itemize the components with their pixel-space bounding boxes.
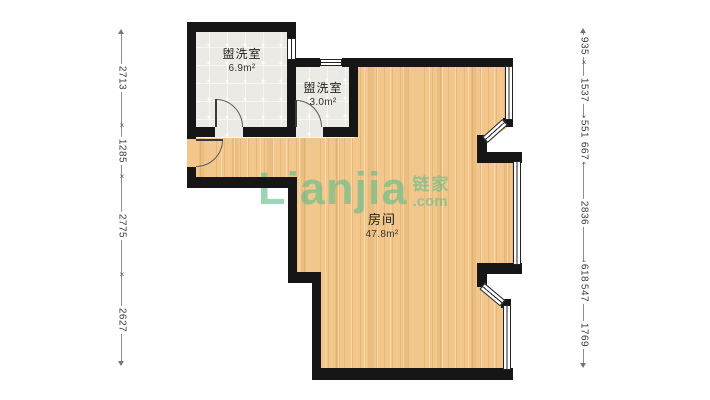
- dimension-label: 935: [579, 35, 590, 57]
- lianjia-logo-text: Lianjia: [258, 168, 408, 210]
- wall-washroom1-top: [187, 22, 296, 32]
- dimension-arrow-down: [118, 361, 124, 366]
- entrance-door-leaf: [196, 139, 223, 141]
- dimension-tick: ×: [120, 122, 125, 130]
- room-name: 房间: [332, 209, 432, 228]
- dimension-arrow-up: [118, 29, 124, 34]
- dimension-label: 2836: [579, 199, 590, 227]
- room-area: 6.9m²: [196, 63, 288, 74]
- dimension-label: 547: [579, 282, 590, 304]
- room-label-washroom-2: 盥洗室 3.0m²: [292, 79, 354, 108]
- dimension-arrow-up: [580, 28, 586, 33]
- window-washroom1: [287, 38, 296, 60]
- dimension-label: 2713: [117, 64, 128, 92]
- lianjia-brand-block: 链家 .com: [413, 176, 451, 209]
- wall-washroom-bottom-a: [187, 127, 215, 137]
- wall-left-lower-vertical: [312, 272, 321, 372]
- dimension-label: 1769: [579, 321, 590, 349]
- wall-bottom: [312, 368, 513, 380]
- window-right-bottom: [503, 305, 511, 370]
- window-washroom2: [320, 59, 342, 66]
- dimension-arrow-down: [580, 363, 586, 368]
- dimension-label: 1285: [117, 137, 128, 165]
- room-area: 3.0m²: [292, 97, 354, 108]
- dimension-label: 551: [579, 118, 590, 140]
- lianjia-watermark: Lianjia 链家 .com: [258, 168, 451, 210]
- dimension-label: 667: [579, 140, 590, 162]
- washroom1-door-leaf: [215, 99, 217, 127]
- dimension-tick: ×: [582, 59, 587, 67]
- dimension-tick: ×: [120, 271, 125, 279]
- window-right-top: [505, 66, 513, 120]
- room-name: 盥洗室: [292, 79, 354, 96]
- wall-washroom-bottom-c: [323, 127, 358, 137]
- wall-bottom-left-horizontal: [187, 177, 297, 188]
- dimension-label: 1537: [579, 76, 590, 104]
- room-label-washroom-1: 盥洗室 6.9m²: [196, 45, 288, 74]
- lianjia-brand-cn: 链家: [413, 176, 451, 194]
- floor-plan: Lianjia 链家 .com 盥洗室 6.9m² 盥洗室 3.: [0, 0, 710, 400]
- dimension-label: 2627: [117, 306, 128, 334]
- room-area: 47.8m²: [332, 229, 432, 240]
- dimension-tick: ×: [120, 173, 125, 181]
- dimension-label: 2775: [117, 212, 128, 240]
- window-right-middle: [513, 161, 521, 265]
- dimension-label: 618: [579, 262, 590, 284]
- wall-washroom-bottom-b: [243, 127, 296, 137]
- lianjia-brand-domain: .com: [413, 194, 451, 209]
- wall-top-segment-b: [342, 58, 513, 67]
- room-label-main-room: 房间 47.8m²: [332, 209, 432, 240]
- wall-left-upper: [187, 22, 196, 139]
- wall-left-mid-vertical: [288, 183, 297, 283]
- room-name: 盥洗室: [196, 45, 288, 62]
